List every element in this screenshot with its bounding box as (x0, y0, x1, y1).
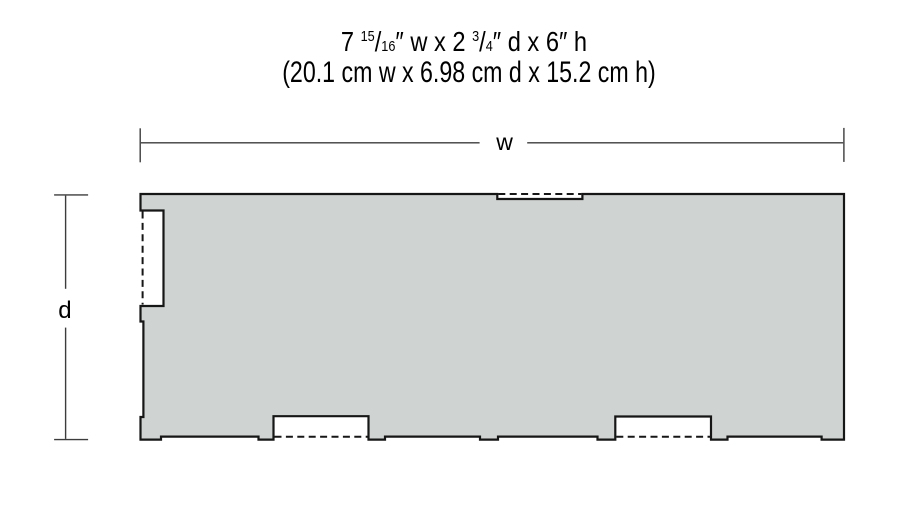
svg-text:d: d (58, 297, 71, 324)
svg-text:7 15/16″ w x 2 3/4″ d x 6″ h: 7 15/16″ w x 2 3/4″ d x 6″ h (341, 27, 587, 57)
svg-text:(20.1 cm w x 6.98 cm d x 15.2: (20.1 cm w x 6.98 cm d x 15.2 cm h) (282, 55, 656, 89)
svg-text:w: w (495, 129, 513, 155)
